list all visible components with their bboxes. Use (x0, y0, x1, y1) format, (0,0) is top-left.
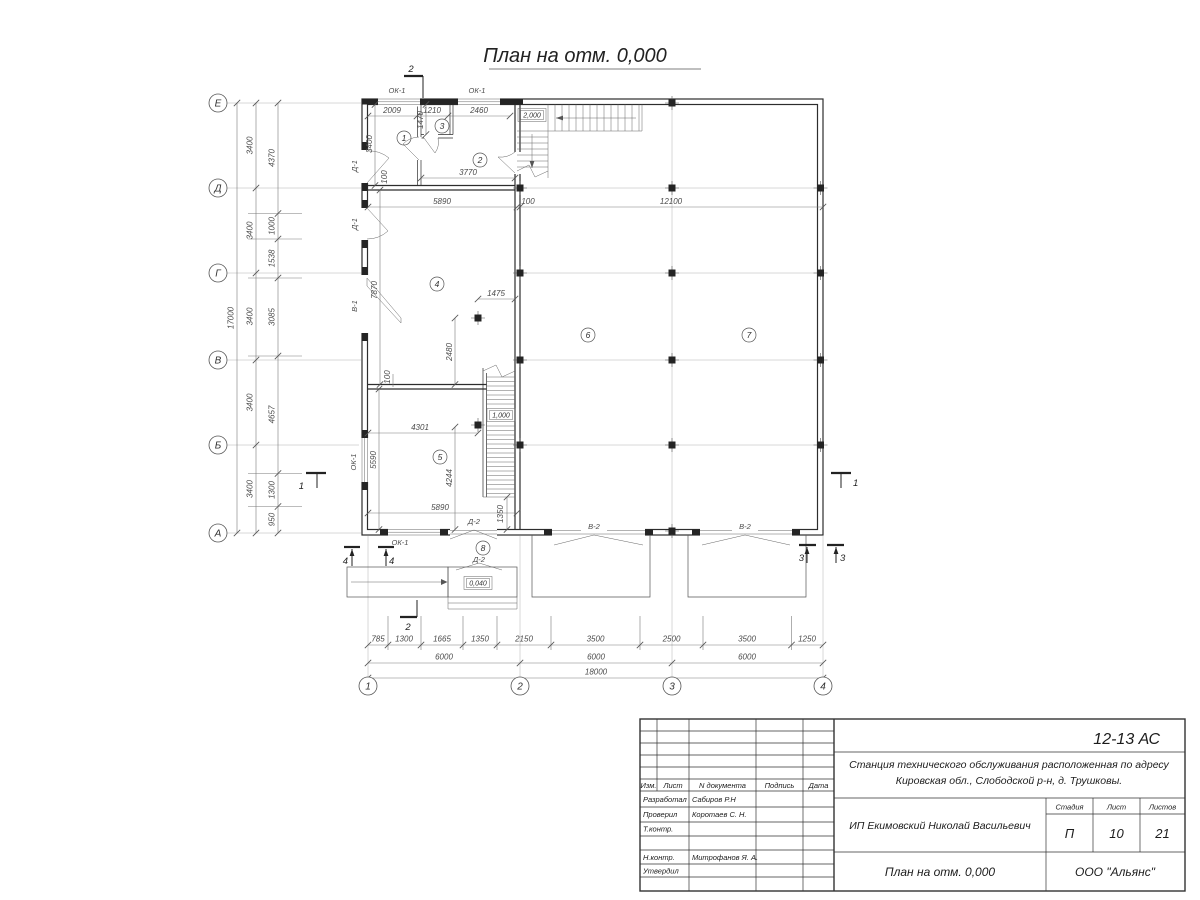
dim-bottom-detail-0: 785 (371, 635, 385, 644)
door-label-d2-a: Д-2 (467, 517, 481, 526)
room-2-number: 2 (477, 155, 483, 165)
tb-client: ИП Екимовский Николай Васильевич (849, 820, 1031, 832)
dim-bottom-detail-6: 2500 (662, 635, 681, 644)
section-mark-2-top: 2 (404, 64, 423, 98)
dim-left-detail-2: 1538 (268, 249, 277, 267)
section-marks: 2 2 1 1 4 4 3 3 (299, 64, 859, 633)
dim-left-main-1: 3400 (246, 221, 255, 239)
tb-sheets-label: Листов (1148, 803, 1176, 812)
window-symbols (362, 99, 792, 535)
gate-label-v2-a: В-2 (588, 522, 601, 531)
dim-mid-chain-2: 12100 (660, 197, 683, 206)
drawing-canvas: План на отм. 0,000 (0, 0, 1200, 900)
section-3-a-label: 3 (799, 553, 805, 564)
room-5: 5 (433, 450, 447, 464)
axis-label-V: В (215, 356, 222, 367)
axis-label-A: А (214, 529, 222, 540)
dim-room5-col-dx: 4301 (411, 423, 429, 432)
gate-label-v2-b: В-2 (739, 522, 752, 531)
dim-col4-dx: 1475 (487, 289, 505, 298)
section-mark-4-b: 4 (378, 547, 394, 567)
section-4-a-label: 4 (343, 556, 348, 567)
dim-bottom-main-0: 6000 (435, 653, 453, 662)
dim-bottom-main-2: 6000 (738, 653, 756, 662)
gate-label-v1: В-1 (350, 300, 359, 312)
room-2: 2 (473, 153, 487, 167)
gate-aprons (532, 535, 806, 597)
room-7: 7 (742, 328, 756, 342)
tb-sheet-label: Лист (1106, 803, 1126, 812)
room-6-number: 6 (586, 330, 591, 340)
dim-top-room-0: 2009 (382, 106, 401, 115)
room-4-number: 4 (435, 279, 440, 289)
tb-role-0: Разработал (643, 795, 687, 804)
dim-bottom-detail-4: 2150 (514, 635, 533, 644)
axis-label-D: Д (213, 184, 221, 195)
dim-left-main-4: 3400 (246, 480, 255, 498)
columns (471, 96, 828, 538)
tb-stage-label: Стадия (1055, 803, 1083, 812)
tb-name-1: Коротаев С. Н. (692, 810, 747, 819)
section-mark-1-left: 1 (299, 473, 326, 492)
section-1-right-label: 1 (853, 478, 858, 489)
title-block: Изм. Лист N документа Подпись Дата Разра… (640, 719, 1185, 891)
elevation-stair-mid-value: 1,000 (492, 413, 510, 420)
stair-main (483, 365, 515, 497)
left-dimension-chains: 17000 3400 3400 3400 3400 3400 4370 1000… (227, 100, 303, 536)
window-label-bottom: ОК-1 (392, 538, 409, 547)
dim-room4-height: 7870 (370, 281, 379, 299)
dim-top-room-2: 2460 (469, 106, 488, 115)
tb-header-list: Лист (662, 781, 682, 790)
dim-left-detail-0: 4370 (268, 149, 277, 167)
elevation-stair-mid: 1,000 (487, 409, 515, 422)
dim-left-main-3: 3400 (246, 393, 255, 411)
dim-bottom-main-1: 6000 (587, 653, 605, 662)
tb-name-4: Митрофанов Я. А. (692, 853, 758, 862)
tb-object-line2: Кировская обл., Слободской р-н, д. Трушк… (896, 775, 1122, 787)
tb-sheet-value: 10 (1109, 826, 1124, 841)
door-label-d2-b: Д-2 (472, 555, 486, 564)
dim-left-detail-4: 4657 (268, 405, 277, 423)
tb-header-izm: Изм. (641, 781, 657, 790)
door-label-d1-b: Д-1 (350, 218, 359, 231)
dim-left-detail-1: 1000 (268, 217, 277, 235)
tb-drawing-name: План на отм. 0,000 (885, 865, 995, 879)
plan-title-text: План на отм. 0,000 (483, 45, 667, 67)
dim-mid-chain-0: 5890 (433, 197, 451, 206)
section-2-top-label: 2 (407, 64, 414, 75)
wall-piers (362, 99, 800, 535)
tb-document-code: 12-13 АС (1093, 731, 1160, 748)
window-label-left: ОК-1 (349, 454, 358, 471)
tb-header-data: Дата (808, 781, 829, 790)
section-3-b-label: 3 (840, 553, 846, 564)
tb-role-2: Т.контр. (643, 825, 673, 834)
dim-pier-offset: 100 (380, 170, 389, 184)
dim-room5-width: 5890 (431, 503, 449, 512)
dim-bottom-detail-3: 1350 (471, 635, 489, 644)
porch-platform (448, 567, 517, 609)
axis-label-B: Б (215, 441, 222, 452)
window-label-top-2: ОК-1 (469, 86, 486, 95)
section-2-bottom-label: 2 (404, 622, 411, 633)
ramp (347, 567, 448, 597)
section-mark-1-right: 1 (831, 473, 858, 489)
dim-room5-height: 5590 (369, 451, 378, 469)
dim-left-detail-5: 1300 (268, 481, 277, 499)
section-4-b-label: 4 (389, 556, 394, 567)
dim-room5-col-dy: 4244 (445, 469, 454, 487)
drawing-sheet: План на отм. 0,000 (0, 0, 1200, 900)
room-6: 6 (581, 328, 595, 342)
room-numbers: 1 2 3 4 5 6 7 8 (397, 119, 756, 555)
section-mark-2-bottom: 2 (400, 600, 417, 633)
dim-left-detail-6: 950 (268, 512, 277, 526)
dim-mid-chain-1: 100 (521, 197, 535, 206)
tb-sheets-value: 21 (1154, 826, 1169, 841)
room-1-number: 1 (402, 133, 407, 143)
room-3: 3 (435, 119, 449, 133)
room-8: 8 (476, 541, 490, 555)
dim-room2-width: 3770 (459, 168, 477, 177)
tb-header-ndoc: N документа (699, 781, 746, 790)
elevation-porch-value: 0,040 (469, 581, 487, 588)
section-mark-3-b: 3 (827, 545, 846, 564)
elevation-stair-top: 2,000 (518, 109, 546, 122)
room-8-number: 8 (481, 543, 486, 553)
axis-label-3: 3 (669, 682, 675, 693)
room-3-number: 3 (440, 121, 445, 131)
tb-object-line1: Станция технического обслуживания распол… (849, 759, 1169, 771)
dim-col4-dy: 2480 (445, 343, 454, 362)
dim-bottom-total: 18000 (585, 668, 608, 677)
wall-openings (359, 97, 792, 538)
tb-company: ООО "Альянс" (1075, 865, 1156, 879)
room-7-number: 7 (747, 330, 752, 340)
dim-left-total: 17000 (227, 306, 236, 329)
room-5-number: 5 (438, 452, 443, 462)
tb-role-4: Н.контр. (643, 853, 675, 862)
dim-wall-offset: 100 (383, 370, 392, 384)
room-1: 1 (397, 131, 411, 145)
interior-dimensions: 2009 1210 2460 1470 3400 3770 100 5890 1… (365, 101, 826, 532)
dim-bottom-detail-7: 3500 (738, 635, 756, 644)
axis-label-E: Е (215, 99, 222, 110)
axis-label-1: 1 (365, 682, 371, 693)
dim-stair-offset: 1350 (496, 505, 505, 523)
dim-left-main-0: 3400 (246, 136, 255, 154)
axis-label-2: 2 (516, 682, 523, 693)
tb-stage-value: П (1065, 826, 1075, 841)
elevation-porch: 0,040 (464, 577, 492, 590)
axis-label-4: 4 (820, 682, 826, 693)
dim-room3-depth: 1470 (416, 111, 425, 129)
section-mark-4-a: 4 (343, 547, 360, 567)
dim-left-detail-3: 3085 (268, 308, 277, 326)
tb-role-5: Утвердил (642, 867, 679, 876)
room-4: 4 (430, 277, 444, 291)
dim-bottom-detail-1: 1300 (395, 635, 413, 644)
axis-grid (227, 103, 823, 677)
tb-role-1: Проверил (643, 810, 678, 819)
bottom-dimension-chains: 785 1300 1665 1350 2150 3500 2500 3500 1… (365, 616, 826, 681)
section-mark-3-a: 3 (799, 545, 816, 564)
elevation-stair-top-value: 2,000 (522, 113, 541, 120)
tb-header-podpis: Подпись (765, 781, 795, 790)
section-1-left-label: 1 (299, 481, 304, 492)
dim-bottom-detail-5: 3500 (587, 635, 605, 644)
dim-bottom-detail-8: 1250 (798, 635, 816, 644)
dim-bottom-detail-2: 1665 (433, 635, 451, 644)
tb-name-0: Сабиров Р.Н (692, 795, 736, 804)
walls (362, 99, 823, 535)
dim-left-main-2: 3400 (246, 307, 255, 325)
window-label-top-1: ОК-1 (389, 86, 406, 95)
plan-title: План на отм. 0,000 (483, 45, 701, 69)
dim-room1-height: 3400 (365, 135, 374, 153)
door-label-d1-a: Д-1 (350, 160, 359, 173)
